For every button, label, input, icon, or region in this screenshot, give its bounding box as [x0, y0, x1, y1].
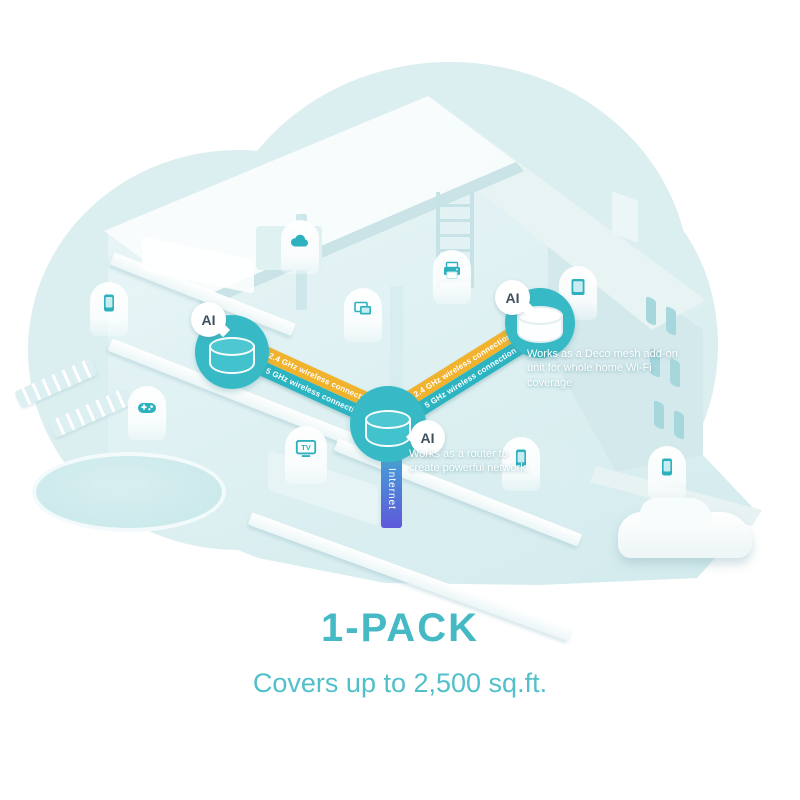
tv-pin: TV: [285, 426, 327, 484]
gamepad-icon: [135, 395, 159, 419]
tv-glyph-label: TV: [301, 443, 311, 452]
ai-badge-label: AI: [202, 312, 216, 328]
window: [654, 400, 664, 431]
cloud-pin: [281, 220, 319, 274]
deco-cylinder: [209, 337, 255, 377]
cloud-icon: [288, 229, 312, 253]
deco-cylinder: [365, 410, 411, 450]
smartphone-icon: [97, 291, 121, 315]
ai-badge: AI: [495, 280, 530, 315]
car-cabin: [640, 498, 712, 524]
chimney: [612, 191, 638, 242]
laptop-icon: [351, 297, 375, 321]
window: [646, 296, 656, 327]
mesh-addon-note: Works as a Deco mesh add-on unit for who…: [527, 347, 685, 390]
window: [666, 306, 676, 337]
tv-icon: TV: [293, 435, 319, 461]
router-note: Works as a router to create powerful net…: [409, 447, 529, 476]
smartphone-pin: [648, 446, 686, 500]
window: [674, 410, 684, 441]
pool: [32, 452, 226, 532]
internet-label: Internet: [386, 468, 397, 510]
printer-pin: [433, 250, 471, 304]
gamepad-pin: [128, 386, 166, 440]
pack-title: 1-PACK: [0, 606, 800, 651]
ai-badge-label: AI: [421, 430, 435, 446]
laptop-pin: [344, 288, 382, 342]
ai-badge-label: AI: [506, 290, 520, 306]
ai-badge: AI: [191, 302, 226, 337]
smartphone-pin: [90, 282, 128, 336]
tablet-icon: [566, 275, 590, 299]
printer-icon: [440, 259, 464, 283]
smartphone-icon: [655, 455, 679, 479]
product-illustration: ‹‹‹ 2.4 GHz wireless connection ››› ‹‹‹ …: [0, 0, 800, 800]
coverage-text: Covers up to 2,500 sq.ft.: [0, 668, 800, 699]
